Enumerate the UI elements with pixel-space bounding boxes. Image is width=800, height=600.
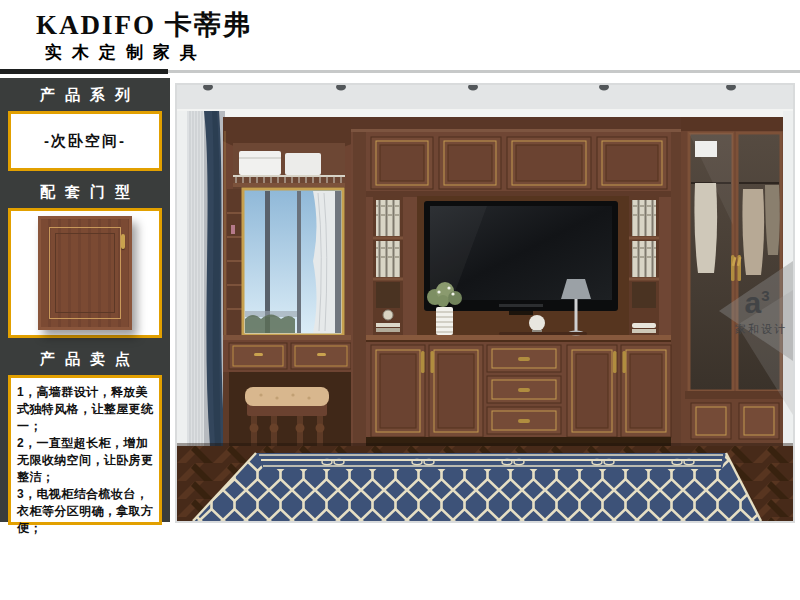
- header-divider-light: [168, 70, 800, 73]
- header-divider-dark: [0, 69, 168, 74]
- door-panel-image: [38, 216, 132, 330]
- door-handle: [121, 234, 125, 249]
- rug: [193, 453, 761, 521]
- dressing-mirror: [243, 189, 343, 335]
- ceiling: [177, 85, 793, 111]
- section-title-series: 产品系列: [0, 84, 170, 106]
- room-photo: a3 家和设计: [175, 83, 795, 523]
- selling-points-box: 1，高墙群设计，释放美式独特风格，让整屋更统一； 2，一直型超长柜，增加无限收纳…: [8, 375, 162, 525]
- watermark-caption: 家和设计: [735, 323, 787, 335]
- sheer-curtain: [187, 111, 204, 446]
- door-panel-inner-bead: [55, 233, 115, 313]
- selling-point-2: 2，一直型超长柜，增加无限收纳空间，让卧房更整洁；: [17, 435, 154, 486]
- selling-point-1: 1，高墙群设计，释放美式独特风格，让整屋更统一；: [17, 384, 154, 435]
- sidebar: 产品系列 -次卧空间- 配套门型 产品卖点 1，高墙群设计，释放美式独特风格，让…: [0, 78, 170, 522]
- selling-point-3: 3，电视柜结合梳妆台，衣柜等分区明确，拿取方便；: [17, 486, 154, 537]
- door-sample-box: [8, 208, 162, 338]
- section-title-selling: 产品卖点: [0, 348, 170, 370]
- series-value: -次卧空间-: [44, 132, 126, 151]
- media-wall: [351, 117, 685, 446]
- brand-subtitle: 实木定制家具: [45, 41, 207, 64]
- bookshelf-left: [373, 196, 403, 335]
- center-drawers: [487, 345, 561, 434]
- bookshelf-right: [629, 196, 659, 335]
- section-title-door: 配套门型: [0, 181, 170, 203]
- storage-box: [239, 151, 281, 175]
- brand-logo: KADIFO 卡蒂弗: [36, 7, 252, 43]
- storage-box: [285, 153, 321, 175]
- base-cabinets: [366, 345, 671, 446]
- upper-cabinets: [371, 137, 667, 189]
- room-photo-art: a3 家和设计: [177, 85, 793, 521]
- series-value-box: -次卧空间-: [8, 111, 162, 171]
